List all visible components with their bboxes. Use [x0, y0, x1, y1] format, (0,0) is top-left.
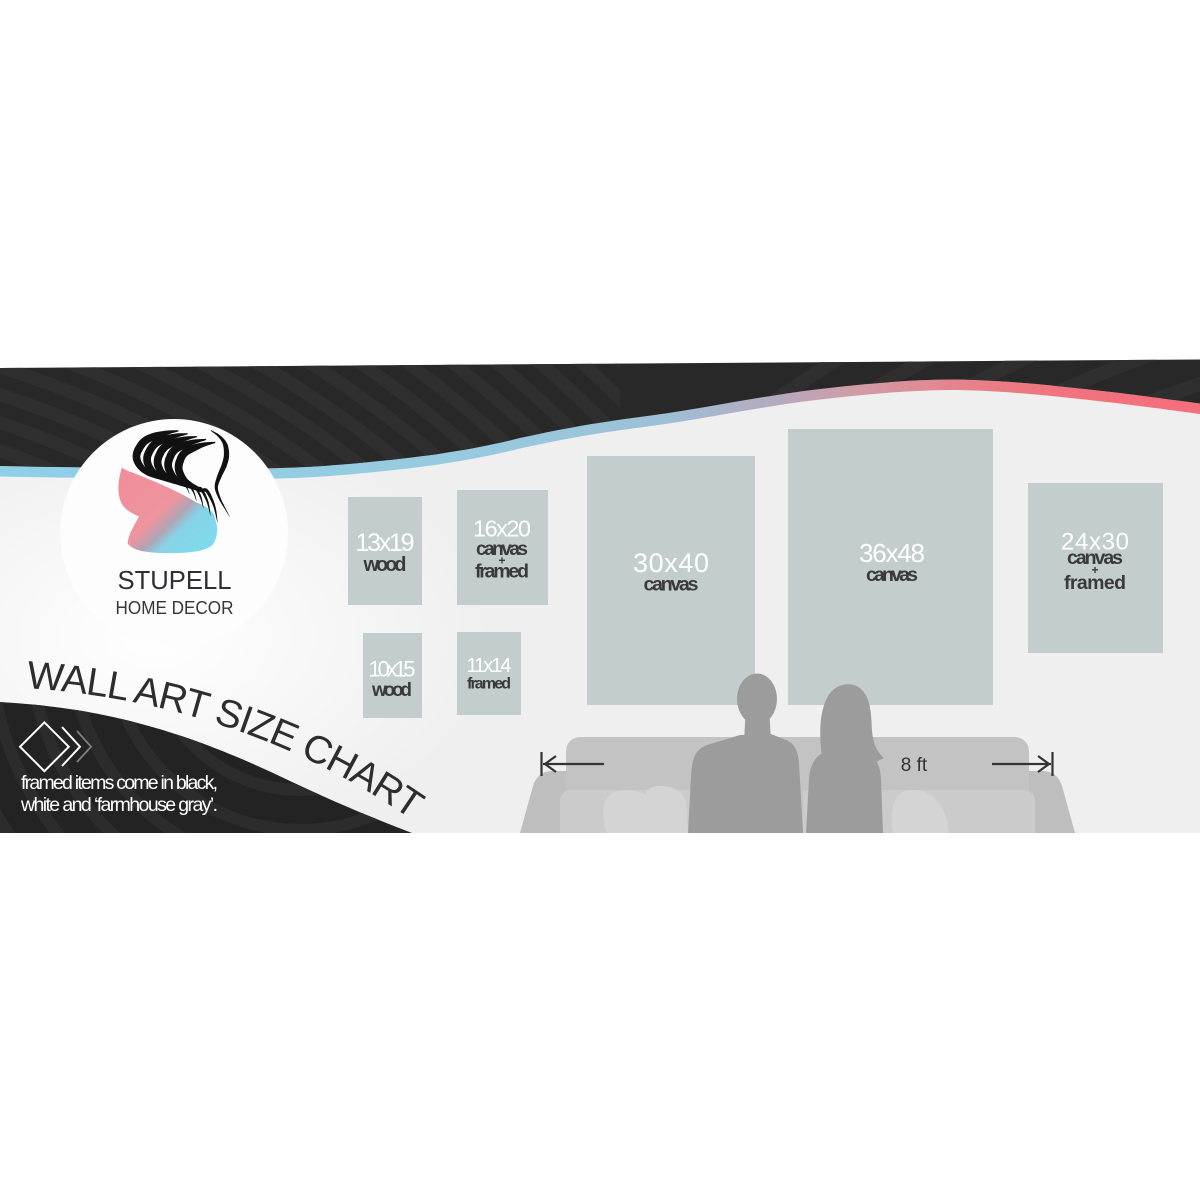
- svg-text:HOME DECOR: HOME DECOR: [116, 598, 234, 618]
- svg-text:11x14: 11x14: [467, 655, 512, 677]
- svg-text:canvas: canvas: [644, 574, 699, 596]
- svg-text:wood: wood: [371, 680, 412, 701]
- svg-text:framed: framed: [467, 676, 511, 693]
- svg-text:white and ‘farmhouse gray’.: white and ‘farmhouse gray’.: [20, 794, 218, 816]
- svg-text:canvas: canvas: [866, 564, 918, 586]
- svg-text:framed: framed: [1064, 572, 1126, 594]
- svg-text:10x15: 10x15: [369, 657, 416, 682]
- svg-text:16x20: 16x20: [473, 516, 531, 542]
- svg-text:8 ft: 8 ft: [901, 755, 928, 776]
- svg-text:13x19: 13x19: [356, 529, 415, 557]
- svg-text:wood: wood: [363, 554, 407, 576]
- svg-text:STUPELL: STUPELL: [118, 565, 232, 595]
- svg-text:framed items come in black,: framed items come in black,: [21, 772, 218, 794]
- svg-text:framed: framed: [475, 561, 529, 583]
